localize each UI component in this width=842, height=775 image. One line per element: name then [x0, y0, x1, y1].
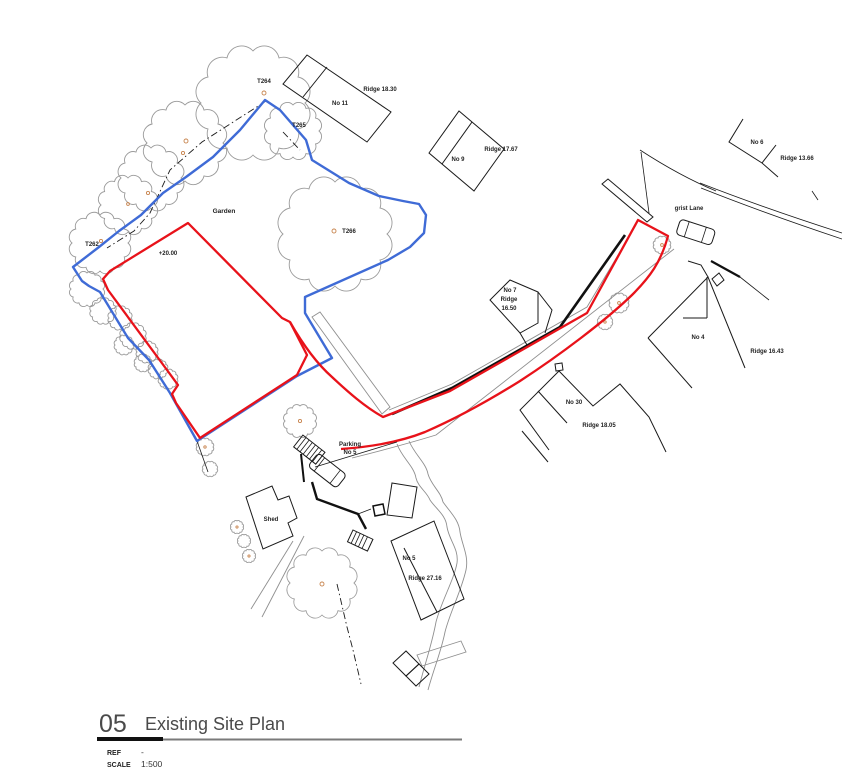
house-no7-label: No 7 [503, 288, 517, 294]
parking-label-2: No 5 [343, 450, 357, 456]
house-no11-label: No 11 [332, 101, 349, 107]
grist-lane-road [640, 150, 842, 239]
house-no7-ridge-1: Ridge [501, 297, 518, 303]
house-no30-label: No 30 [566, 400, 583, 406]
car-parking [308, 453, 347, 489]
spot-level-label: +20.00 [159, 251, 178, 257]
ref-value: - [141, 747, 144, 757]
track-to-shed-2 [262, 536, 304, 617]
ref-label: REF [107, 750, 122, 757]
house-no9-label: No 9 [451, 157, 465, 163]
title-block: 05 Existing Site Plan REF - SCALE 1:500 [97, 710, 462, 769]
tree-label-t262: T262 [85, 242, 99, 248]
house-no11-ridge: Ridge 18.30 [363, 87, 397, 93]
car-grist-lane [676, 219, 716, 246]
garden-label: Garden [213, 208, 236, 215]
tree-label-t266: T266 [342, 229, 356, 235]
tree-label-t264: T264 [257, 79, 271, 85]
building-no6 [729, 119, 778, 177]
site-plan-drawing: T264 T265 T266 T262 Garden +20.00 No 11 … [0, 0, 842, 775]
house-no4-label: No 4 [691, 335, 705, 341]
parking-label-1: Parking [339, 442, 361, 448]
scale-value: 1:500 [141, 759, 163, 769]
drive-retaining-wall [392, 179, 769, 414]
scale-label: SCALE [107, 762, 131, 769]
outbuildings [373, 483, 429, 686]
house-no6-label: No 6 [750, 140, 764, 146]
grist-lane-label: grist Lane [675, 206, 704, 212]
building-no4 [648, 261, 745, 388]
house-no5-ridge: Ridge 27.16 [408, 576, 442, 582]
building-no30 [520, 363, 666, 462]
footpath-east-2 [409, 441, 467, 690]
drawing-sheet: T264 T265 T266 T262 Garden +20.00 No 11 … [0, 0, 842, 775]
dash-dot-boundary-lines [107, 101, 361, 684]
shed-label: Shed [264, 517, 279, 523]
house-no4-ridge: Ridge 16.43 [750, 349, 784, 355]
garden-boundary-blue [73, 100, 426, 441]
tree-label-t265: T265 [292, 123, 306, 129]
house-no6-ridge: Ridge 13.66 [780, 156, 814, 162]
site-boundary-red [103, 220, 668, 449]
steps-shed [347, 530, 372, 551]
steps-parking [294, 435, 325, 464]
building-no7 [490, 280, 552, 345]
drawing-number: 05 [99, 710, 127, 738]
house-no30-ridge: Ridge 18.05 [582, 423, 616, 429]
house-no5-label: No 5 [402, 556, 416, 562]
building-no5 [391, 521, 464, 620]
drawing-title: Existing Site Plan [145, 714, 285, 734]
house-no9-ridge: Ridge 17.67 [484, 147, 518, 153]
tree-canopies [69, 46, 670, 618]
house-no7-ridge-2: 16.50 [501, 306, 517, 312]
